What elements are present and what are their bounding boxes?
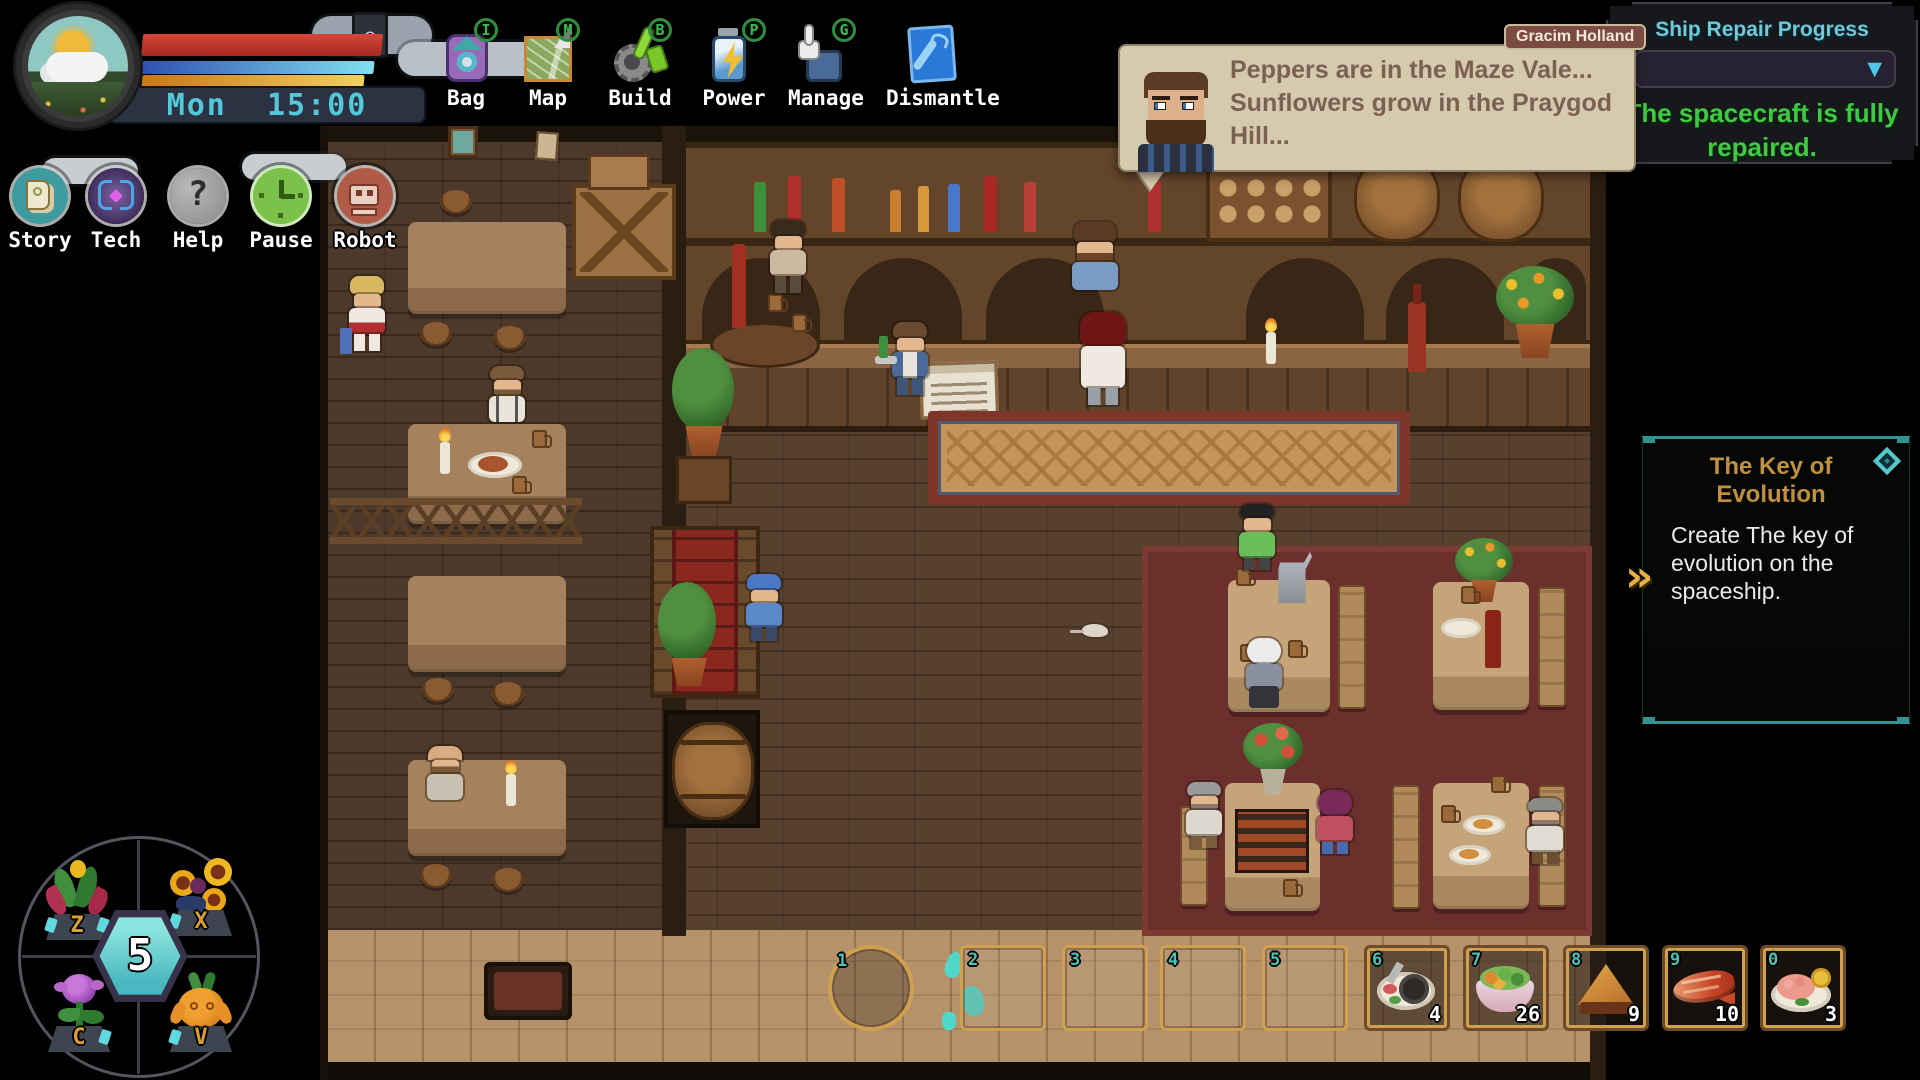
toolbar-label: Bag xyxy=(430,86,502,110)
table-candle xyxy=(506,774,516,806)
ship-repair-title: Ship Repair Progress xyxy=(1608,18,1916,42)
robot-icon xyxy=(337,168,393,224)
story-icon xyxy=(12,168,68,224)
wine-bottle xyxy=(1485,610,1501,668)
tech-icon xyxy=(88,168,144,224)
barrel-alcove xyxy=(664,710,760,828)
rose-bouquet xyxy=(1243,723,1303,771)
npc-purple-hair-woman[interactable] xyxy=(1316,790,1354,854)
hotkey-badge: G xyxy=(832,18,856,42)
paint-splat xyxy=(942,1012,956,1030)
ship-repair-status: The spacecraft is fully repaired. xyxy=(1608,96,1916,164)
mug-rack-cups xyxy=(1214,176,1324,234)
slot-number: 9 xyxy=(1670,950,1680,970)
mug xyxy=(1491,775,1506,793)
quest-corner xyxy=(1643,717,1655,724)
hotbar-slot-3[interactable]: 3 xyxy=(1062,945,1148,1031)
item-count: 3 xyxy=(1825,1002,1837,1026)
broom xyxy=(340,328,352,354)
dining-table xyxy=(1433,582,1529,710)
wall-picture xyxy=(448,126,478,158)
bottle-green xyxy=(754,182,766,232)
menu-label: Robot xyxy=(327,228,403,252)
tavern-scene xyxy=(320,126,1606,1080)
flower-bush xyxy=(1496,266,1574,328)
dialog-box[interactable]: Peppers are in the Maze Vale... Sunflowe… xyxy=(1118,44,1636,172)
pause-clock-icon xyxy=(253,168,309,224)
quest-corner xyxy=(1643,436,1655,443)
quest-panel: The Key of Evolution Create The key of e… xyxy=(1642,436,1910,724)
stool xyxy=(492,682,524,706)
crate-brace xyxy=(580,192,668,272)
dismantle-icon xyxy=(903,24,959,86)
quest-corner xyxy=(1897,717,1909,724)
bottle-neck xyxy=(1413,284,1421,304)
slot-number: 0 xyxy=(1768,950,1778,970)
candle-flame xyxy=(439,428,451,442)
mug xyxy=(792,314,807,332)
menu-button-tech[interactable]: Tech xyxy=(78,168,154,252)
slot-number: 3 xyxy=(1070,950,1080,970)
wine-bottle-counter xyxy=(1408,302,1426,372)
menu-button-robot[interactable]: Robot xyxy=(327,168,403,252)
hotbar-slot-9[interactable]: 9 10 xyxy=(1662,945,1748,1031)
mug xyxy=(532,430,547,448)
stool xyxy=(422,678,454,702)
npc-white-hair-elder[interactable] xyxy=(1245,638,1283,690)
stool xyxy=(492,868,524,892)
tray-bottle xyxy=(879,336,888,358)
weather-scene xyxy=(28,16,128,116)
build-icon: B xyxy=(612,24,668,86)
hotkey-badge: I xyxy=(474,18,498,42)
menu-label: Story xyxy=(2,228,78,252)
pet-slot-c[interactable]: C xyxy=(46,972,112,1052)
plate xyxy=(1449,845,1491,865)
pet-slot-z[interactable]: Z xyxy=(44,860,110,940)
slot-number: 6 xyxy=(1372,950,1382,970)
floor-edge xyxy=(320,1062,1606,1080)
menu-label: Tech xyxy=(78,228,154,252)
hotbar-slot-10[interactable]: 0 3 xyxy=(1760,945,1846,1031)
item-count: 9 xyxy=(1628,1002,1640,1026)
pet-key-label: V xyxy=(168,1025,234,1050)
bottle-amber xyxy=(890,190,901,232)
clock-label: 15:00 xyxy=(267,88,367,123)
mug xyxy=(1236,568,1251,586)
table-flowers xyxy=(1455,538,1513,584)
hatch-inner xyxy=(494,972,562,1010)
dropdown-arrow-icon[interactable]: ▼ xyxy=(1867,58,1882,80)
shelf-board xyxy=(686,238,1590,246)
toolbar-button-map[interactable]: M Map xyxy=(512,24,584,110)
bag-icon: I xyxy=(438,24,494,86)
stool xyxy=(420,864,452,888)
dialog-line-1: Peppers are in the Maze Vale... xyxy=(1230,54,1628,87)
mouse-tail xyxy=(1070,630,1084,633)
mouse[interactable] xyxy=(1082,624,1108,637)
toolbar-button-build[interactable]: B Build xyxy=(604,24,676,110)
menu-button-story[interactable]: Story xyxy=(2,168,78,252)
slot-number: 5 xyxy=(1270,950,1280,970)
pet-key-label: Z xyxy=(44,913,110,938)
health-bar xyxy=(141,34,383,56)
table xyxy=(408,222,566,314)
chair xyxy=(1249,686,1279,708)
map-icon: M xyxy=(520,24,576,86)
mug xyxy=(1283,879,1298,897)
menu-button-pause[interactable]: Pause xyxy=(243,168,319,252)
left-wall-edge xyxy=(320,126,328,1080)
hotbar-slot-5[interactable]: 5 xyxy=(1262,945,1348,1031)
toolbar-label: Build xyxy=(604,86,676,110)
npc-green-shirt-man[interactable] xyxy=(1238,504,1276,570)
bottle-amber xyxy=(918,186,929,232)
panel-corner xyxy=(1892,2,1918,20)
hotkey-badge: M xyxy=(556,18,580,42)
menu-label: Pause xyxy=(243,228,319,252)
barrel xyxy=(672,722,754,820)
quest-title: The Key of Evolution xyxy=(1679,453,1863,509)
plate-roast xyxy=(468,452,522,478)
npc-blonde-woman[interactable] xyxy=(348,276,386,351)
quest-collapse-chevron[interactable]: » xyxy=(1625,551,1653,602)
hotbar-slot-7[interactable]: 7 26 xyxy=(1463,945,1549,1031)
hotkey-badge: P xyxy=(742,18,766,42)
toolbar-label: Dismantle xyxy=(886,86,976,110)
bottle-red xyxy=(1024,182,1036,232)
candle-flame xyxy=(1265,318,1277,332)
npc-mustache-man-left[interactable] xyxy=(1185,782,1223,848)
weather-widget xyxy=(16,4,140,128)
skewer-platter xyxy=(1235,809,1309,873)
toolbar-button-dismantle[interactable]: Dismantle xyxy=(886,24,976,110)
wooden-crate-small xyxy=(588,154,650,190)
bar-rug xyxy=(928,411,1410,505)
slot-number: 8 xyxy=(1571,950,1581,970)
wall-note xyxy=(535,131,559,160)
barrel-band xyxy=(680,794,746,799)
day-label: Mon xyxy=(167,88,227,123)
dialog-line-2: Sunflowers grow in the Praygod Hill... xyxy=(1230,87,1628,153)
potted-plant xyxy=(658,582,716,662)
time-display: Mon 15:00 xyxy=(108,86,426,124)
quest-description: Create The key of evolution on the space… xyxy=(1671,521,1879,605)
right-wall-pillar xyxy=(1590,126,1606,1080)
slot-number: 7 xyxy=(1471,950,1481,970)
menu-lines xyxy=(931,378,988,414)
help-icon: ? xyxy=(170,168,226,224)
corn-plant-icon xyxy=(48,860,106,916)
manage-icon: G xyxy=(796,24,852,86)
player-character xyxy=(1080,312,1126,405)
floor-hatch xyxy=(484,962,572,1020)
carrot-sprout-icon xyxy=(170,972,232,1030)
roast-food xyxy=(478,456,508,472)
hotbar-slot-4[interactable]: 4 xyxy=(1160,945,1246,1031)
stool xyxy=(420,322,452,346)
pet-key-label: X xyxy=(168,909,234,934)
bottle-blue xyxy=(948,184,960,232)
pet-slot-x[interactable]: X xyxy=(168,856,234,936)
bottle-orange xyxy=(832,178,845,232)
hotbar-slot-6[interactable]: 6 4 xyxy=(1364,945,1450,1031)
menu-label: Help xyxy=(160,228,236,252)
food xyxy=(1459,849,1479,859)
ship-repair-panel: Ship Repair Progress ▼ The spacecraft is… xyxy=(1606,2,1918,164)
stool xyxy=(494,326,526,350)
picture-art xyxy=(453,131,473,153)
toolbar-label: Manage xyxy=(788,86,860,110)
sunflower-cluster-icon xyxy=(168,856,234,914)
npc-waiter[interactable] xyxy=(891,322,929,395)
hotkey-badge: B xyxy=(648,18,672,42)
bottle-red xyxy=(984,176,997,232)
power-icon: P xyxy=(706,24,762,86)
bench xyxy=(1538,587,1566,707)
slot-number: 4 xyxy=(1168,950,1178,970)
mug xyxy=(512,476,527,494)
npc-bald-man[interactable] xyxy=(426,746,464,800)
table-candle xyxy=(440,442,450,474)
potted-plant xyxy=(672,348,734,432)
ship-repair-slot[interactable]: ▼ xyxy=(1634,50,1896,88)
pet-slot-v[interactable]: V xyxy=(168,972,234,1052)
mug xyxy=(1461,586,1476,604)
quest-tracker-icon[interactable] xyxy=(1873,447,1901,475)
hotbar-slot-1[interactable]: 1 xyxy=(828,945,914,1031)
item-count: 26 xyxy=(1516,1002,1540,1026)
speaker-nametag: Gracim Holland xyxy=(1504,24,1646,50)
shelf-arch xyxy=(1386,258,1504,340)
hotbar-slot-8[interactable]: 8 9 xyxy=(1563,945,1649,1031)
npc-kid-blue-cap[interactable] xyxy=(745,574,783,641)
pet-selection-wheel: Z X C xyxy=(18,836,260,1078)
counter-candle xyxy=(1266,332,1276,364)
bench xyxy=(1338,585,1366,709)
water-bar xyxy=(141,61,374,74)
plate xyxy=(1463,815,1505,835)
npc-suspenders-man[interactable] xyxy=(488,366,526,422)
menu-button-help[interactable]: ? Help xyxy=(160,168,236,252)
item-count: 4 xyxy=(1429,1002,1441,1026)
bench xyxy=(1392,785,1420,909)
dining-table xyxy=(1225,783,1320,911)
barrel-band xyxy=(680,740,746,745)
hills xyxy=(28,82,128,116)
plant-stand xyxy=(676,456,732,504)
rug-pattern xyxy=(947,430,1391,486)
quest-corner xyxy=(1897,436,1909,443)
mug-rack xyxy=(1206,168,1332,242)
food xyxy=(1473,819,1493,829)
cloud-icon xyxy=(46,52,108,82)
toolbar-button-bag[interactable]: I Bag xyxy=(430,24,502,110)
table xyxy=(408,576,566,672)
slot-number: 2 xyxy=(968,950,978,970)
mug xyxy=(768,294,783,312)
stool xyxy=(440,190,472,214)
npc-bartender[interactable] xyxy=(1072,222,1118,290)
panel-corner xyxy=(1606,2,1632,20)
npc-mustache-man-right[interactable] xyxy=(1526,798,1564,864)
hotbar-slot-2[interactable]: 2 xyxy=(960,945,1046,1031)
shelf-arch xyxy=(1246,258,1364,340)
mug xyxy=(1288,640,1303,658)
wine-bottle-tray xyxy=(732,244,746,328)
railing-lattice xyxy=(330,498,582,544)
wooden-crate xyxy=(572,184,676,280)
toolbar-label: Map xyxy=(512,86,584,110)
speaker-portrait xyxy=(1134,72,1218,172)
dining-table xyxy=(1433,783,1529,909)
slot-number: 1 xyxy=(837,951,847,971)
rug-inner xyxy=(938,421,1400,495)
plate xyxy=(1441,618,1481,638)
bar-counter-top xyxy=(686,344,1590,368)
mug xyxy=(1441,805,1456,823)
toolbar-button-manage[interactable]: G Manage xyxy=(788,24,860,110)
toolbar-label: Power xyxy=(698,86,770,110)
candle-flame xyxy=(505,760,517,774)
purple-rose-icon xyxy=(52,972,106,1028)
toolbar-button-power[interactable]: P Power xyxy=(698,24,770,110)
npc-man-crates[interactable] xyxy=(769,220,807,293)
item-count: 10 xyxy=(1715,1002,1739,1026)
pet-key-label: C xyxy=(46,1025,112,1050)
